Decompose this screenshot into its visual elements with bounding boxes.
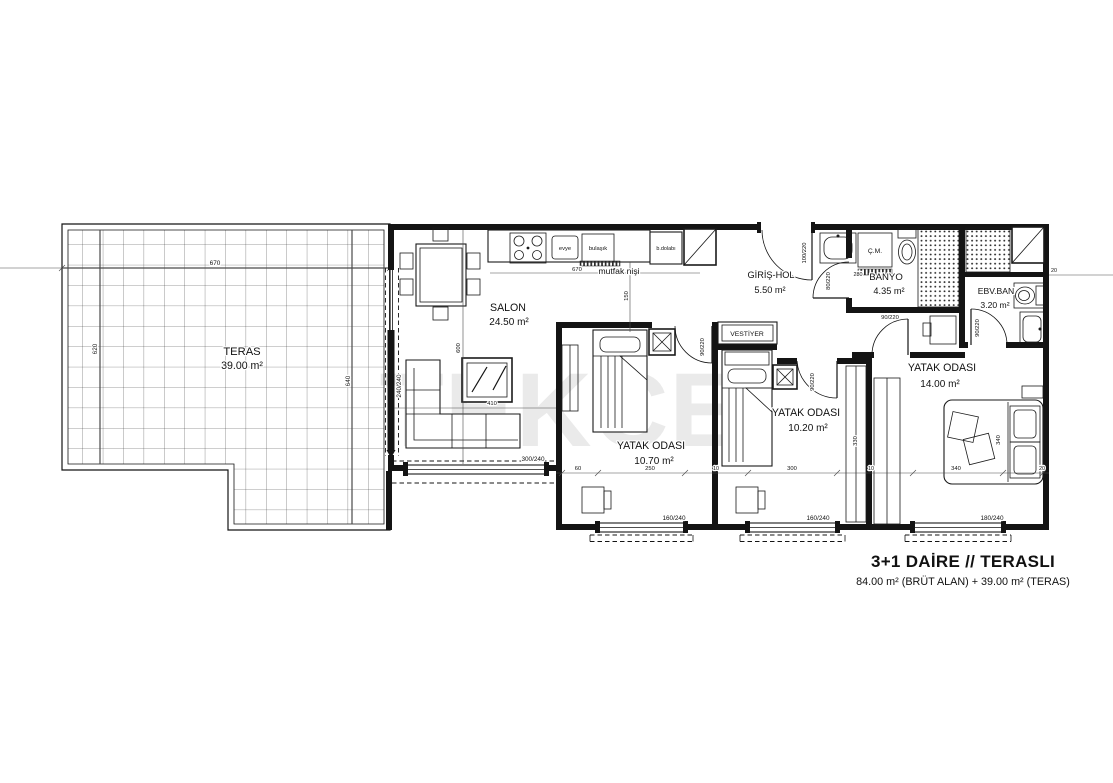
dim-seg-20: 20 xyxy=(1039,466,1045,472)
title-block: 3+1 DAİRE // TERASLI 84.00 m² (BRÜT ALAN… xyxy=(856,552,1070,588)
room-area-salon: 24.50 m² xyxy=(489,317,529,328)
dim-bed2-depth: 330 xyxy=(853,436,859,446)
shower-area xyxy=(918,228,959,307)
dim-entry-door: 100/220 xyxy=(802,243,808,264)
room-area-yatak3: 14.00 m² xyxy=(920,379,960,390)
dim-teras-left: 620 xyxy=(92,343,99,354)
washbasin-icon-2 xyxy=(1020,312,1044,346)
dim-bed1-door: 90/220 xyxy=(700,338,706,356)
dim-right-20: 20 xyxy=(1051,268,1057,274)
dim-window3: 180/240 xyxy=(980,515,1004,522)
single-bed-icon-2 xyxy=(722,350,772,466)
toilet-icon-2 xyxy=(1014,283,1044,308)
room-label-hol: GİRİŞ-HOL xyxy=(748,270,795,280)
chair-icon xyxy=(400,253,413,269)
dim-teras-right: 640 xyxy=(345,375,352,386)
room-label-yatak2: YATAK ODASI xyxy=(772,407,840,419)
room-area-ebv: 3.20 m² xyxy=(980,300,1009,310)
dim-banyo-w: 280 xyxy=(854,272,863,278)
terrace xyxy=(0,224,393,530)
tv-unit xyxy=(462,358,512,402)
plan-title: 3+1 DAİRE // TERASLI xyxy=(871,552,1055,571)
chair-icon xyxy=(400,279,413,295)
room-label-teras: TERAS xyxy=(223,346,260,358)
dim-seg-10a: 10 xyxy=(713,466,719,472)
floor-plan-sheet: TEKCE xyxy=(0,0,1113,783)
room-label-banyo: BANYO xyxy=(869,272,903,283)
sink-label: evye xyxy=(559,246,571,252)
bedroom-2-furniture xyxy=(722,350,866,522)
shelf-icon xyxy=(1022,386,1043,398)
bedroom-windows xyxy=(590,521,1011,542)
room-label-yatak1: YATAK ODASI xyxy=(617,440,685,452)
dim-teras-width: 670 xyxy=(210,260,221,267)
fridge-label: b.dolabı xyxy=(656,246,675,252)
dim-seg-10b: 10 xyxy=(868,466,874,472)
dim-ebv-door: 90/220 xyxy=(975,319,981,337)
dim-bed2-door: 90/220 xyxy=(810,373,816,391)
dim-salon-window: 300/240 xyxy=(521,456,545,463)
dim-seg-300: 300 xyxy=(787,466,797,472)
toilet-icon xyxy=(898,229,916,264)
dining-table xyxy=(400,228,480,320)
chair-icon xyxy=(467,279,480,295)
washing-machine-label: Ç.M. xyxy=(868,248,882,255)
floor-plan-drawing: TEKCE xyxy=(0,0,1113,783)
kitchen-niche-label: mutfak nişi xyxy=(598,266,639,276)
room-label-yatak3: YATAK ODASI xyxy=(908,362,976,374)
desk-icon xyxy=(582,487,611,513)
chair-icon xyxy=(433,307,448,320)
dishwasher-label: bulaşık xyxy=(589,246,607,252)
dim-seg-60: 60 xyxy=(575,466,581,472)
room-label-salon: SALON xyxy=(490,302,526,314)
room-area-yatak2: 10.20 m² xyxy=(788,423,828,434)
dim-salon-h: 600 xyxy=(456,343,462,353)
dim-niche-depth: 150 xyxy=(624,291,630,301)
room-label-ebv: EBV.BAN xyxy=(978,286,1014,296)
chair-icon xyxy=(467,253,480,269)
shower-area-2 xyxy=(966,228,1010,272)
room-area-hol: 5.50 m² xyxy=(754,285,785,295)
dim-window2: 160/240 xyxy=(806,515,830,522)
dim-salon-w: 410 xyxy=(487,401,497,407)
dim-kitchen-w: 670 xyxy=(572,267,582,273)
dim-banyo-door: 80/220 xyxy=(826,272,832,290)
room-area-banyo: 4.35 m² xyxy=(873,286,904,296)
dim-bed3-door: 90/220 xyxy=(881,315,899,321)
plan-subtitle: 84.00 m² (BRÜT ALAN) + 39.00 m² (TERAS) xyxy=(856,576,1070,588)
shaft-x-icon-2 xyxy=(773,365,797,389)
dim-window1: 160/240 xyxy=(662,515,686,522)
vestiyer-label: VESTİYER xyxy=(730,329,764,338)
desk-icon-2 xyxy=(736,487,765,513)
shaft-x-icon xyxy=(649,329,675,355)
dresser-icon xyxy=(923,316,956,344)
room-area-teras: 39.00 m² xyxy=(221,360,263,372)
dim-seg-250: 250 xyxy=(645,466,655,472)
dim-teras-door: 240/240 xyxy=(396,374,403,398)
single-bed-icon xyxy=(593,330,647,432)
dim-seg-340: 340 xyxy=(951,466,961,472)
dim-bed3-depth: 340 xyxy=(996,435,1002,445)
